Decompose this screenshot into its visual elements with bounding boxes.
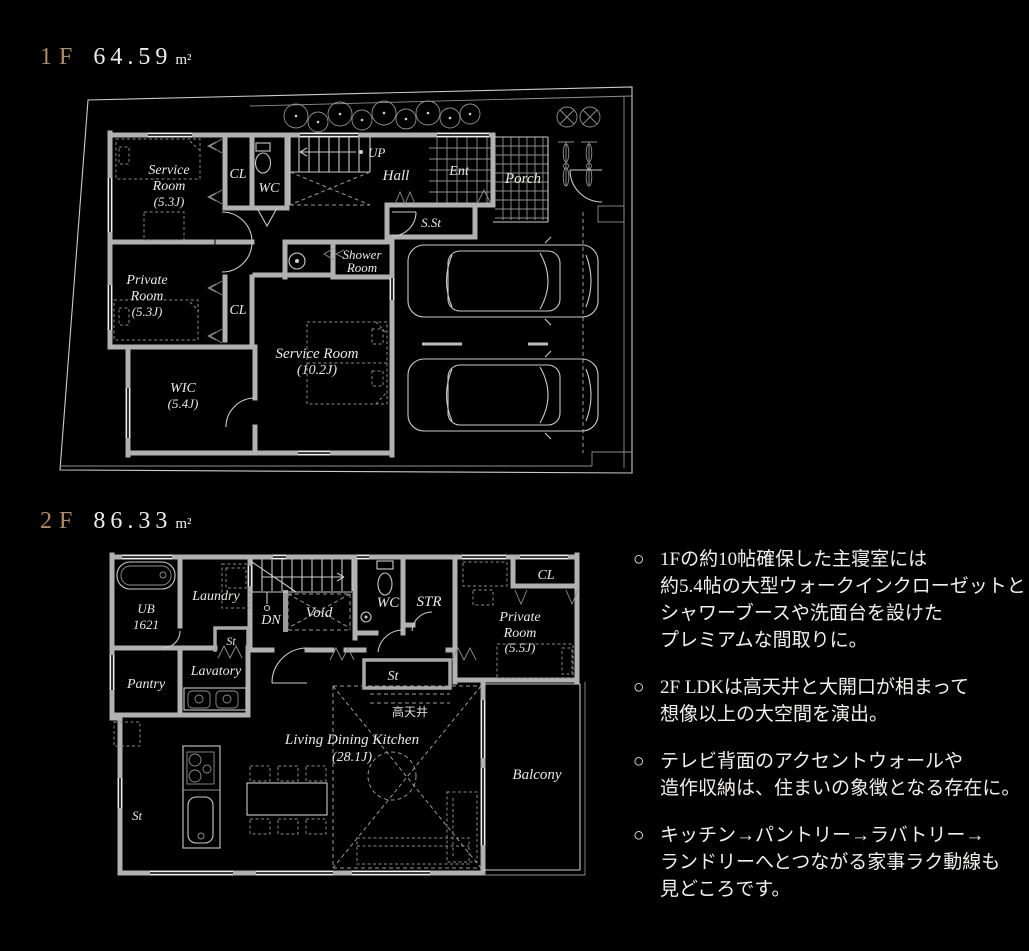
note-1-line-1: 1Fの約10帖確保した主寝室には bbox=[660, 546, 1026, 573]
room-label-st2: St bbox=[388, 669, 400, 684]
room-label-ub2: 1621 bbox=[133, 617, 159, 632]
note-1-line-3: シャワーブースや洗面台を設けた bbox=[660, 600, 1026, 627]
room-label-private-2f: Private bbox=[498, 610, 540, 625]
room-label-private2-2f: Room bbox=[503, 626, 537, 641]
note-2-line-2: 想像以上の大空間を演出。 bbox=[660, 701, 969, 728]
note-1-line-4: プレミアムな間取りに。 bbox=[660, 627, 1026, 654]
floor-area-1f: 64.59 bbox=[93, 44, 172, 71]
room-label-laundry: Laundry bbox=[191, 589, 240, 604]
note-2-line-1: 2F LDKは高天井と大開口が相まって bbox=[660, 674, 969, 701]
staircase-1f bbox=[290, 137, 370, 205]
note-1-bullet: ○ bbox=[633, 546, 660, 654]
bicycle-parking-icon bbox=[557, 107, 600, 186]
stairs-dn-label: DN bbox=[260, 613, 281, 628]
car-icon-2 bbox=[408, 351, 598, 439]
note-4-line-3: 見どころです。 bbox=[660, 876, 1000, 903]
tree-row-icon bbox=[284, 101, 480, 132]
note-1-line-2: 約5.4帖の大型ウォークインクローゼットと bbox=[660, 573, 1026, 600]
room-size-private-2f: (5.5J) bbox=[505, 640, 536, 655]
room-label-service-b: Service Room bbox=[276, 346, 359, 362]
room-label-ldk: Living Dining Kitchen bbox=[284, 732, 419, 748]
room-size-private-1f: (5.3J) bbox=[132, 304, 163, 319]
room-label-wc-2f: WC bbox=[377, 595, 400, 611]
room-label-cl-2f: CL bbox=[537, 568, 554, 583]
staircase-2f bbox=[252, 559, 352, 611]
note-3: ○ テレビ背面のアクセントウォールや 造作収納は、住まいの象徴となる存在に。 bbox=[633, 748, 1029, 802]
vanity-icon bbox=[184, 688, 246, 710]
note-4: ○ キッチン→パントリー→ラバトリー→ ランドリーへとつながる家事ラク動線も 見… bbox=[633, 822, 1029, 903]
room-size-service-a: (5.3J) bbox=[154, 194, 185, 209]
room-label-st1: St bbox=[226, 634, 236, 648]
room-label-service-a2: Room bbox=[152, 179, 186, 194]
car-icon-1 bbox=[408, 237, 598, 325]
washbasin-icon-1f bbox=[289, 253, 305, 269]
room-label-st3: St bbox=[132, 808, 143, 823]
floor-area-unit-1f: m² bbox=[175, 52, 191, 69]
garage-1f bbox=[408, 212, 598, 453]
room-label-cl1: CL bbox=[229, 167, 246, 182]
room-label-porch: Porch bbox=[504, 171, 541, 187]
bathtub-icon bbox=[117, 562, 175, 589]
floor-plan-2f: UB 1621 Laundry DN Void WC STR CL Privat… bbox=[80, 540, 640, 940]
note-3-bullet: ○ bbox=[633, 748, 660, 802]
floor-area-unit-2f: m² bbox=[175, 516, 191, 533]
room-label-private-1f: Private bbox=[125, 273, 167, 288]
toilet-icon-1f bbox=[256, 143, 271, 173]
room-label-lavatory: Lavatory bbox=[190, 664, 242, 679]
feature-notes: ○ 1Fの約10帖確保した主寝室には 約5.4帖の大型ウォークインクローゼットと… bbox=[633, 546, 1029, 923]
room-label-hall: Hall bbox=[382, 168, 410, 184]
note-3-line-1: テレビ背面のアクセントウォールや bbox=[660, 748, 1020, 775]
note-2-bullet: ○ bbox=[633, 674, 660, 728]
room-size-wic: (5.4J) bbox=[168, 396, 199, 411]
room-label-sst: S.St bbox=[421, 215, 441, 230]
room-label-ent: Ent bbox=[448, 164, 470, 179]
note-2: ○ 2F LDKは高天井と大開口が相まって 想像以上の大空間を演出。 bbox=[633, 674, 1029, 728]
room-label-balcony: Balcony bbox=[512, 767, 561, 783]
room-label-wc-1f: WC bbox=[259, 181, 281, 196]
floor-title-1f: 1F 64.59 m² bbox=[40, 44, 192, 71]
toilet-icon-2f bbox=[361, 561, 393, 622]
page: { "page": { "background": "#000000", "ac… bbox=[0, 0, 1029, 951]
room-label-shower2: Room bbox=[346, 260, 377, 275]
room-size-service-b: (10.2J) bbox=[297, 363, 337, 378]
kitchen-icon bbox=[183, 746, 220, 848]
note-1: ○ 1Fの約10帖確保した主寝室には 約5.4帖の大型ウォークインクローゼットと… bbox=[633, 546, 1029, 654]
floor-plan-1f: Service Room (5.3J) CL WC UP Hall Ent Po… bbox=[0, 75, 700, 505]
floor-label-2f: 2F bbox=[40, 508, 79, 535]
note-4-line-2: ランドリーへとつながる家事ラク動線も bbox=[660, 849, 1000, 876]
room-label-void: Void bbox=[306, 605, 333, 621]
walls-2f bbox=[112, 555, 577, 873]
room-label-cl2: CL bbox=[229, 303, 246, 318]
note-3-line-2: 造作収納は、住まいの象徴となる存在に。 bbox=[660, 775, 1020, 802]
note-4-bullet: ○ bbox=[633, 822, 660, 903]
stairs-up-label: UP bbox=[368, 145, 385, 160]
high-ceiling-label: 高天井 bbox=[392, 704, 428, 719]
floor-area-2f: 86.33 bbox=[93, 508, 172, 535]
room-label-private2-1f: Room bbox=[130, 289, 164, 304]
room-label-service-a: Service bbox=[148, 163, 189, 178]
floor-title-2f: 2F 86.33 m² bbox=[40, 508, 192, 535]
room-size-ldk: (28.1J) bbox=[332, 750, 372, 765]
room-label-ub: UB bbox=[137, 601, 154, 616]
floor-label-1f: 1F bbox=[40, 44, 79, 71]
room-label-str: STR bbox=[416, 594, 441, 610]
note-4-line-1: キッチン→パントリー→ラバトリー→ bbox=[660, 822, 1000, 849]
room-label-wic: WIC bbox=[170, 381, 196, 396]
room-label-pantry: Pantry bbox=[126, 677, 166, 692]
